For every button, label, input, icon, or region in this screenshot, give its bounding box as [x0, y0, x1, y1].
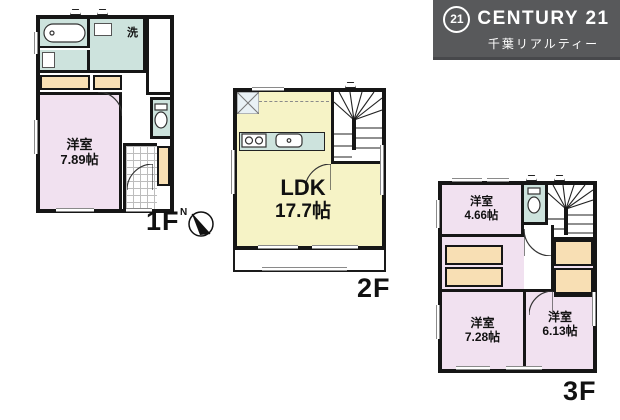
entrance-door-gap [126, 208, 152, 212]
door-arc-icon [127, 164, 153, 190]
toilet-1f [150, 97, 170, 139]
stairs-2f [331, 92, 382, 164]
room-name: 洋室 [470, 196, 493, 210]
toilet-icon [153, 103, 169, 133]
brand-subtitle: 千葉リアルティー [454, 35, 599, 52]
floor-plan-3f: 洋室 4.66帖 [438, 181, 597, 373]
window [436, 200, 440, 228]
room-name: 洋室 [548, 310, 572, 324]
closet [93, 75, 122, 90]
vent-icon [97, 9, 108, 15]
room-name: 洋室 [66, 137, 92, 152]
room-name: 洋室 [470, 316, 494, 330]
window [380, 145, 384, 195]
floor-plan-2f: LDK 17.7帖 [233, 88, 386, 250]
floor-tag-2f: 2F [357, 273, 391, 304]
window [252, 87, 284, 91]
window [487, 178, 509, 182]
closet [445, 267, 503, 287]
vent-icon [345, 82, 356, 88]
compass-icon: N [177, 204, 219, 242]
closet [40, 75, 90, 90]
window [452, 178, 482, 182]
refrigerator-space [237, 92, 259, 114]
window [506, 366, 542, 370]
winder-stairs-icon [548, 185, 593, 237]
room-size: 7.89帖 [60, 152, 98, 167]
vanity-icon [42, 52, 55, 68]
laundry-label: 洗 [127, 24, 138, 40]
bathtub-icon [42, 22, 88, 46]
cross-hatch-icon [237, 92, 259, 114]
room-3f-a: 洋室 4.66帖 [442, 185, 524, 237]
window [436, 305, 440, 339]
closet [554, 240, 593, 266]
stove-sink-icons [240, 133, 324, 149]
kitchen-counter [239, 132, 325, 151]
powder-room [40, 50, 90, 73]
hallway-3f [524, 225, 554, 289]
shoe-cabinet [157, 146, 170, 186]
room-2f-ldk: LDK 17.7帖 [247, 174, 359, 224]
upper-cabinet-line [259, 101, 329, 102]
seal-21: 21 [450, 12, 463, 26]
balcony-opening [262, 267, 347, 271]
laundry-room: 洗 [90, 19, 146, 73]
window [34, 120, 38, 154]
floor-plan-1f: 洗 洋室 7.89帖 [36, 15, 174, 213]
window [258, 245, 298, 249]
toilet-icon [525, 187, 545, 221]
closet [554, 268, 593, 294]
bathroom [40, 19, 90, 48]
door-arc-icon [98, 92, 122, 116]
door-arc-icon [524, 229, 551, 256]
room-3f-c-label: 洋室 6.13帖 [532, 307, 588, 341]
floor-tag-3f: 3F [563, 376, 597, 407]
window [56, 208, 94, 212]
window [34, 32, 38, 54]
vent-icon [554, 175, 565, 181]
window [456, 366, 490, 370]
window [312, 245, 358, 249]
century21-logo-banner: 21 CENTURY 21 千葉リアルティー [433, 0, 620, 60]
vent-icon [526, 175, 537, 181]
brand-name: CENTURY 21 [477, 8, 609, 30]
vent-icon [70, 9, 81, 15]
closet [445, 245, 503, 265]
window [592, 292, 596, 326]
room-size: 7.28帖 [465, 330, 500, 344]
washbasin-icon [94, 23, 112, 36]
stairs-3f [548, 185, 593, 240]
floor-plan-image: 洗 洋室 7.89帖 1 [0, 0, 620, 420]
room-3f-b: 洋室 7.28帖 [442, 289, 526, 369]
stairs-1f [146, 19, 170, 95]
genkan-entrance [123, 143, 157, 209]
room-size: 17.7帖 [275, 201, 331, 223]
window [231, 150, 235, 194]
century21-seal-icon: 21 [443, 6, 470, 33]
toilet-3f [524, 185, 548, 225]
room-name: LDK [280, 175, 325, 201]
room-size: 4.66帖 [465, 210, 499, 224]
room-size: 6.13帖 [542, 324, 577, 338]
winder-stairs-icon [334, 92, 382, 161]
compass-north-label: N [180, 207, 187, 218]
